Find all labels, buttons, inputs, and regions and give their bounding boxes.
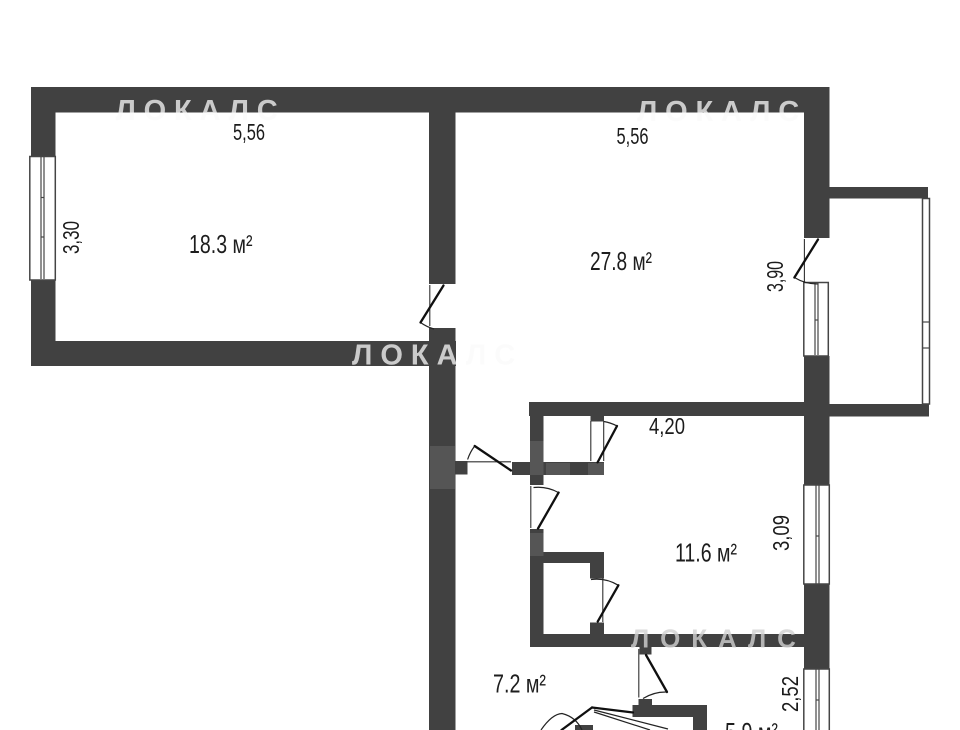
svg-text:3,90: 3,90 xyxy=(762,261,788,292)
svg-text:11.6 м²: 11.6 м² xyxy=(675,538,737,568)
svg-text:7.2 м²: 7.2 м² xyxy=(493,669,546,699)
svg-text:ЛОКАЛС: ЛОКАЛС xyxy=(637,96,807,128)
svg-text:2,52: 2,52 xyxy=(777,676,803,712)
svg-text:18.3 м²: 18.3 м² xyxy=(189,229,253,259)
svg-text:5,56: 5,56 xyxy=(233,119,265,145)
svg-text:5,9 м²: 5,9 м² xyxy=(725,717,778,730)
svg-text:27.8 м²: 27.8 м² xyxy=(590,246,652,276)
svg-text:5,56: 5,56 xyxy=(617,123,649,149)
svg-text:ЛОКАЛС: ЛОКАЛС xyxy=(631,624,807,654)
svg-text:4,20: 4,20 xyxy=(649,413,685,439)
svg-text:ЛОКАЛС: ЛОКАЛС xyxy=(352,340,523,372)
svg-text:3,30: 3,30 xyxy=(58,221,84,254)
svg-text:3,09: 3,09 xyxy=(768,515,794,551)
